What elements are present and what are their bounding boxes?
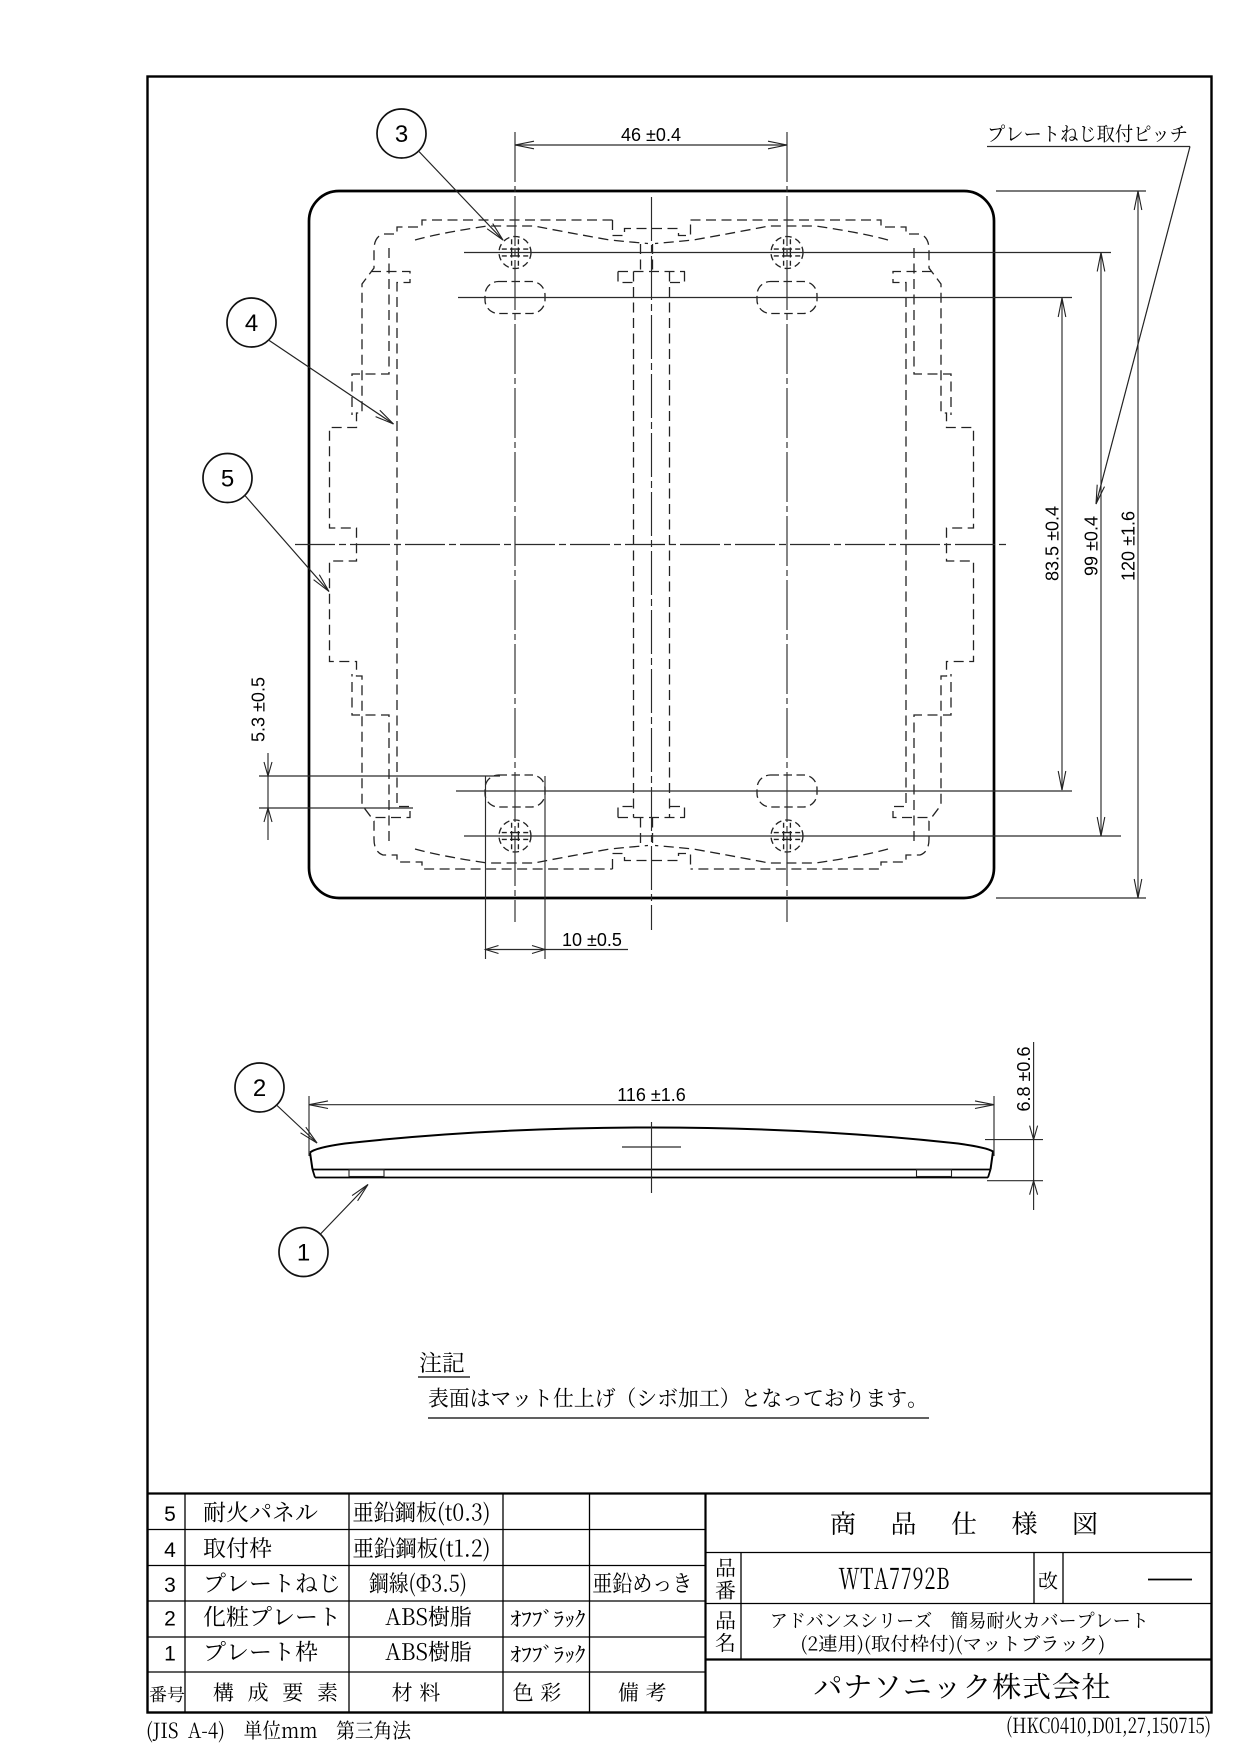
svg-text:5: 5	[221, 466, 234, 493]
svg-text:4: 4	[164, 1539, 176, 1562]
svg-text:1: 1	[164, 1643, 176, 1666]
svg-text:83.5 ±0.4: 83.5 ±0.4	[1043, 506, 1063, 581]
svg-text:5: 5	[164, 1503, 176, 1526]
svg-text:120 ±1.6: 120 ±1.6	[1119, 511, 1139, 581]
svg-text:4: 4	[245, 310, 258, 337]
svg-text:5.3 ±0.5: 5.3 ±0.5	[249, 677, 269, 742]
svg-text:2: 2	[164, 1608, 176, 1631]
svg-text:3: 3	[164, 1574, 176, 1597]
svg-text:1: 1	[297, 1240, 310, 1267]
svg-text:10 ±0.5: 10 ±0.5	[562, 930, 622, 950]
svg-text:99 ±0.4: 99 ±0.4	[1082, 516, 1102, 576]
svg-text:6.8 ±0.6: 6.8 ±0.6	[1014, 1047, 1034, 1112]
svg-text:46 ±0.4: 46 ±0.4	[621, 125, 681, 145]
svg-text:2: 2	[253, 1075, 266, 1102]
svg-text:116 ±1.6: 116 ±1.6	[617, 1085, 686, 1105]
svg-text:3: 3	[395, 121, 408, 148]
